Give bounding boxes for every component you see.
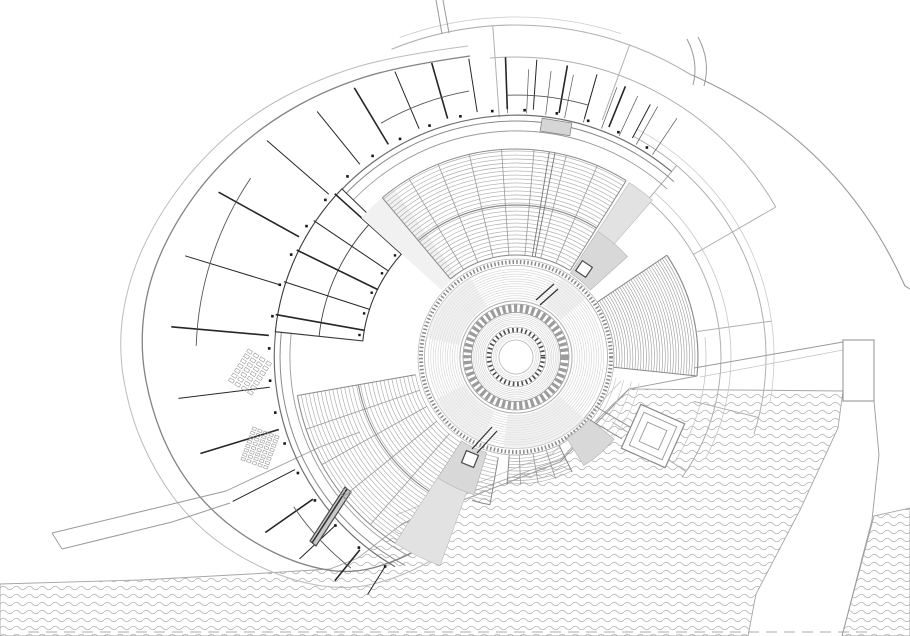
column-dots [617,131,620,134]
column-dots [491,110,494,113]
seminar-room-desks [263,366,269,371]
fan-lowerleft-rows-a [482,470,496,473]
lecture-room-desks [263,465,268,469]
path-northeast-curve [687,39,695,85]
site-edge-northeast [692,75,910,289]
west-bulge-columns [381,272,383,274]
lecture-room-desks [268,452,273,456]
path-top [443,0,449,33]
fan-lowerleft-rows-b [309,394,401,534]
seminar-room-desks [259,357,265,362]
terrace-arc [637,129,774,402]
walkway-southwest-branch [226,432,360,491]
column-dots [587,120,590,123]
seminar-room-desks [231,373,237,378]
terrace-arc-outer [400,17,621,38]
seminar-room-desks [241,359,247,364]
terrace-radial-lines [694,207,776,255]
lecture-room-desks [262,435,267,439]
room-walls [469,59,477,112]
lecture-room-desks [251,446,256,450]
lecture-room-desks [252,461,257,465]
column-dots [314,499,317,502]
east-block [843,340,874,401]
lecture-room-desks [273,439,278,443]
column-dots [523,109,526,112]
room-walls [559,66,567,113]
lecture-room-desks [248,455,253,459]
fan-lowerleft-rows-a [479,478,494,482]
column-dots [283,442,286,445]
fan-lowerleft-rows-a [485,458,498,461]
lecture-room-desks [259,459,264,463]
terrace-radial-lines [648,166,677,201]
lecture-room-desks [242,453,247,457]
column-dots [399,138,402,141]
room-partitions-top [602,87,617,128]
seminar-room-desks [228,378,234,383]
seminar-room-desks [244,354,250,359]
room-partitions-top [527,69,529,113]
room-walls [533,60,537,110]
column-dots [268,347,271,350]
lecture-room-desks [266,442,271,446]
west-bulge-columns [394,254,396,256]
room-walls [395,72,419,129]
seminar-room-desks [237,363,243,368]
fan-lowerleft-rows-a [486,455,498,458]
column-dots [290,253,293,256]
seminar-room-desks [266,361,272,366]
west-bulge-columns [371,292,373,294]
lecture-room-desks [258,463,263,467]
column-dots [269,379,272,382]
column-dots [371,155,374,158]
lecture-room-desks [267,457,272,461]
west-bulge-columns [363,312,365,314]
lecture-room-desks [244,448,249,452]
terrace-arc [490,57,776,207]
room-walls [265,499,313,532]
layer-site-walls [52,46,470,588]
seminar-room-desks [248,390,254,395]
seminar-room-desks [247,362,253,367]
fan-lowerleft-rows-a [484,462,497,465]
wedge-east-rows [658,261,687,375]
room-walls [267,141,329,195]
room-walls [432,63,448,119]
seminar-room-desks [256,362,262,367]
seminar-room-desks [235,382,241,387]
lecture-room-desks [241,427,279,469]
room-walls [506,57,508,109]
wedge-outer-corner-line [629,376,697,389]
fan-edges [297,375,415,396]
lecture-room-desks [274,435,279,439]
floor-plan-svg [0,0,910,636]
aisle-upper-right [571,231,628,290]
column-dots [358,546,361,549]
room-walls [354,88,388,145]
site-plan-page [0,0,910,636]
fan-lowerleft-aisles [322,407,427,465]
fan-edges [614,367,698,376]
column-dots [428,124,431,127]
room-walls [179,387,270,398]
lecture-room-desks [254,457,259,461]
column-dots [274,411,277,414]
seminar-room-desks [254,380,260,385]
room-walls [632,105,650,139]
wedge-east-rows [644,271,670,374]
west-bulge-columns [358,334,360,336]
lecture-room-desks [260,440,265,444]
column-dots [646,146,649,149]
lecture-room-desks [258,444,263,448]
column-dots [305,225,308,228]
fan-lowerleft-rows-a [480,474,495,477]
room-walls [171,327,269,336]
fan-lowerleft-rows-a [478,481,493,485]
column-dots [297,472,300,475]
lecture-room-desks [250,431,255,435]
lecture-room-desks [270,448,275,452]
fan-upper-aisles [469,154,493,257]
seminar-room-desks [244,367,250,372]
seminar-room-desks [260,370,266,375]
roof-hatch-field-right [842,508,910,636]
wedge-east-rows [642,272,668,373]
lecture-room-desks [255,453,260,457]
walkway-southwest-end [52,533,62,549]
room-walls [200,430,278,454]
seminar-room-desks [234,368,240,373]
column-dots [279,284,282,287]
lecture-room-desks [247,459,252,463]
seminar-room-desks [247,376,253,381]
lecture-room-desks [257,448,262,452]
room-partitions-top [546,71,551,115]
room-walls [219,192,300,237]
lecture-room-desks [258,429,263,433]
seminar-room-desks [241,372,247,377]
room-partitions-top [619,96,638,136]
terrace-radial-lines [493,26,500,118]
lecture-room-desks [250,451,255,455]
seminar-room-desks [253,353,259,358]
column-dots [271,315,274,318]
room-partitions-top [565,75,574,118]
lecture-room-desks [241,457,246,461]
lecture-room-desks [271,444,276,448]
column-dots [556,112,559,115]
seminar-room-desks [247,349,253,354]
seminar-room-desks [257,375,263,380]
terrace-radial-lines [697,321,771,331]
lecture-room-desks [263,450,268,454]
lecture-room-desks [265,461,270,465]
seminar-room-desks [250,371,256,376]
seminar-room-desks [250,358,256,363]
room-walls [233,470,295,502]
lecture-room-desks [269,433,274,437]
column-dots [324,199,327,202]
lecture-room-desks [252,427,257,431]
lecture-room-desks [254,438,259,442]
lecture-room-desks [267,437,272,441]
lecture-room-desks [253,442,258,446]
lecture-room-desks [246,444,251,448]
seminar-room-desks [244,381,250,386]
lecture-room-desks [261,455,266,459]
room-walls [584,74,597,118]
room-walls [609,86,626,127]
room-walls [185,256,279,285]
room-walls [317,111,360,164]
room-partitions-top [652,118,677,155]
fan-lowerleft-rows-a [483,466,497,469]
seminar-room-desks [253,366,259,371]
stage-center [499,340,533,374]
seminar-room-desks [238,377,244,382]
lecture-room-desks [264,446,269,450]
column-dots [459,115,462,118]
lecture-room-desks [247,440,252,444]
column-dots [346,175,349,178]
path-top [436,0,442,34]
room-inner-wall [381,91,469,123]
